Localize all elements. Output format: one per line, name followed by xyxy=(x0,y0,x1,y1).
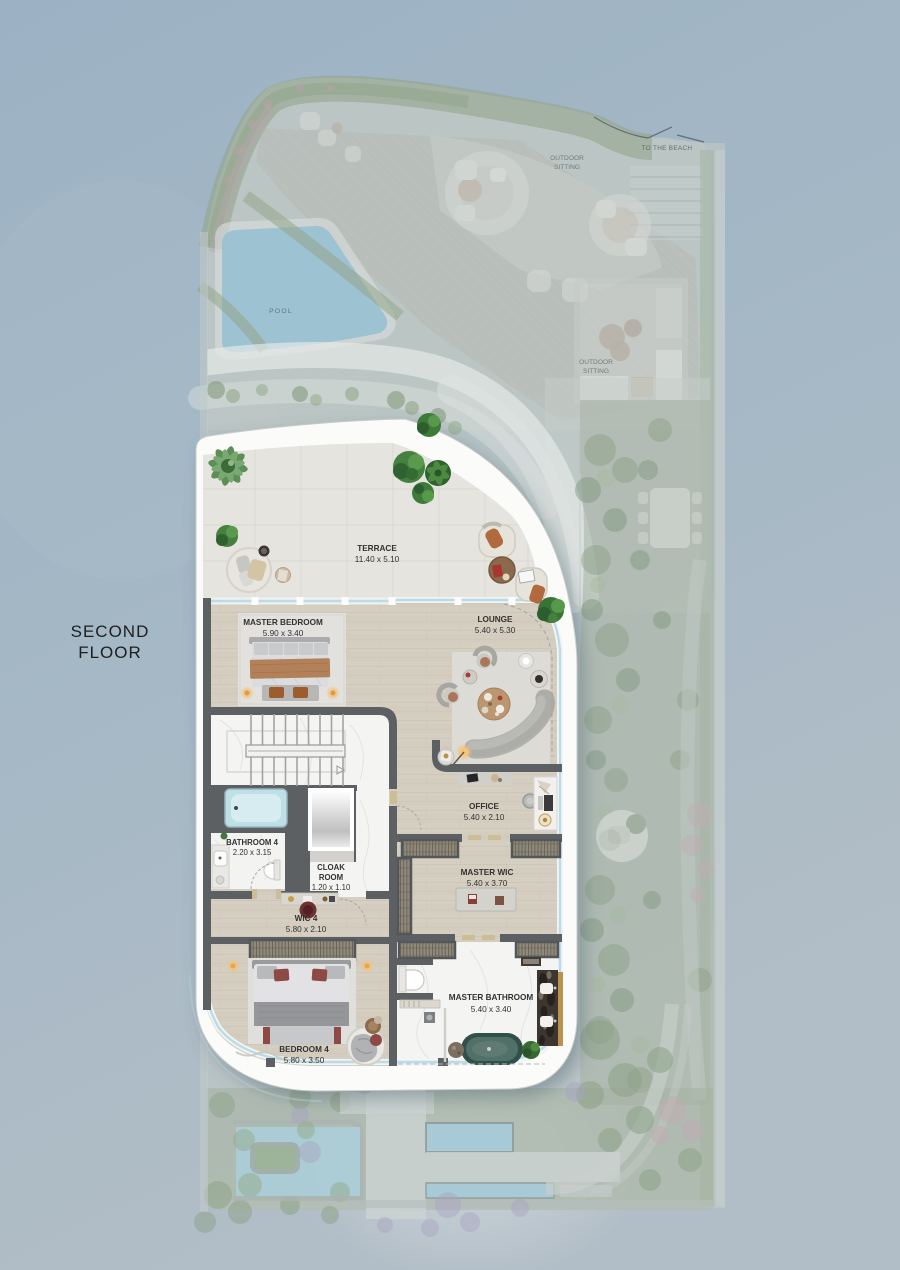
svg-text:OFFICE: OFFICE xyxy=(469,802,500,811)
svg-text:5.40 x 2.10: 5.40 x 2.10 xyxy=(464,813,505,822)
svg-text:OUTDOOR: OUTDOOR xyxy=(550,155,584,162)
svg-text:TERRACE: TERRACE xyxy=(357,544,397,553)
svg-text:OUTDOOR: OUTDOOR xyxy=(579,359,613,366)
svg-text:LOUNGE: LOUNGE xyxy=(477,615,513,624)
svg-text:SITTING: SITTING xyxy=(554,164,580,171)
svg-text:POOL: POOL xyxy=(269,308,293,315)
svg-text:2.20 x 3.15: 2.20 x 3.15 xyxy=(233,848,272,857)
svg-text:ROOM: ROOM xyxy=(319,873,343,882)
svg-text:5.40 x 3.70: 5.40 x 3.70 xyxy=(467,879,508,888)
svg-text:TO THE BEACH: TO THE BEACH xyxy=(642,145,693,152)
svg-text:11.40 x 5.10: 11.40 x 5.10 xyxy=(355,555,400,564)
svg-text:5.40 x 5.30: 5.40 x 5.30 xyxy=(475,626,516,635)
svg-text:1.20 x 1.10: 1.20 x 1.10 xyxy=(312,883,351,892)
svg-text:WIC 4: WIC 4 xyxy=(295,914,318,923)
svg-text:SECOND: SECOND xyxy=(71,622,150,641)
svg-text:MASTER BEDROOM: MASTER BEDROOM xyxy=(243,618,323,627)
svg-text:CLOAK: CLOAK xyxy=(317,863,345,872)
svg-text:MASTER BATHROOM: MASTER BATHROOM xyxy=(449,993,534,1002)
svg-text:BATHROOM 4: BATHROOM 4 xyxy=(226,838,278,847)
svg-text:5.80 x 2.10: 5.80 x 2.10 xyxy=(286,925,327,934)
svg-text:MASTER WIC: MASTER WIC xyxy=(461,868,514,877)
svg-text:5.90 x 3.40: 5.90 x 3.40 xyxy=(263,629,304,638)
svg-text:5.40 x 3.40: 5.40 x 3.40 xyxy=(471,1005,512,1014)
svg-text:FLOOR: FLOOR xyxy=(78,643,142,662)
svg-text:SITTING: SITTING xyxy=(583,368,609,375)
svg-text:5.80 x 3.50: 5.80 x 3.50 xyxy=(284,1056,325,1065)
svg-text:BEDROOM 4: BEDROOM 4 xyxy=(279,1045,329,1054)
